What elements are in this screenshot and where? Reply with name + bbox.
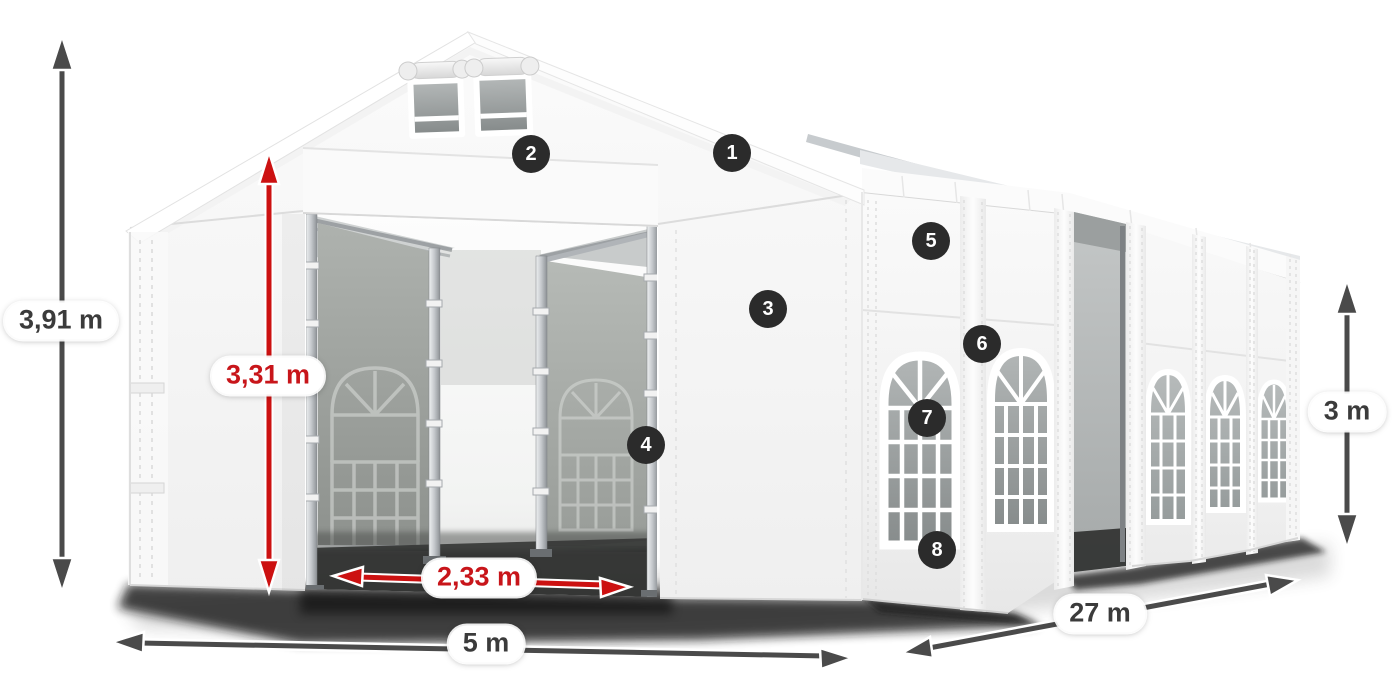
vent-window-left bbox=[399, 60, 474, 139]
callout-badge-1: 1 bbox=[713, 134, 751, 172]
dimension-label-side-height: 3 m bbox=[1310, 393, 1385, 430]
entrance-left-panel bbox=[318, 223, 436, 551]
side-window-5 bbox=[1259, 382, 1289, 500]
callout-badge-4: 4 bbox=[627, 426, 665, 464]
callout-badge-3: 3 bbox=[749, 290, 787, 328]
side-window-4 bbox=[1207, 378, 1243, 510]
entrance-interior bbox=[298, 214, 667, 598]
dimension-label-total-height: 3,91 m bbox=[5, 302, 117, 339]
dimension-label-entrance-width: 2,33 m bbox=[423, 559, 535, 596]
side-window-1 bbox=[884, 356, 956, 545]
side-window-3 bbox=[1148, 372, 1188, 522]
callout-badge-8: 8 bbox=[918, 531, 956, 569]
callout-badge-7: 7 bbox=[908, 399, 946, 437]
callout-badge-2: 2 bbox=[512, 135, 550, 173]
callout-badge-5: 5 bbox=[912, 222, 950, 260]
vent-window-right bbox=[465, 57, 542, 138]
side-window-2 bbox=[991, 352, 1051, 528]
side-open-section bbox=[1074, 212, 1126, 572]
dimension-label-width: 5 m bbox=[449, 625, 524, 662]
dimension-label-entrance-height: 3,31 m bbox=[212, 357, 324, 394]
entrance-right-panel bbox=[540, 233, 655, 552]
tent-illustration bbox=[0, 0, 1400, 700]
front-left-corner-strap bbox=[128, 232, 168, 585]
product-diagram-stage: 3,91 m 3,31 m 2,33 m 5 m 27 m 3 m 1 2 3 … bbox=[0, 0, 1400, 700]
dimension-label-length: 27 m bbox=[1055, 595, 1145, 632]
callout-badge-6: 6 bbox=[963, 325, 1001, 363]
